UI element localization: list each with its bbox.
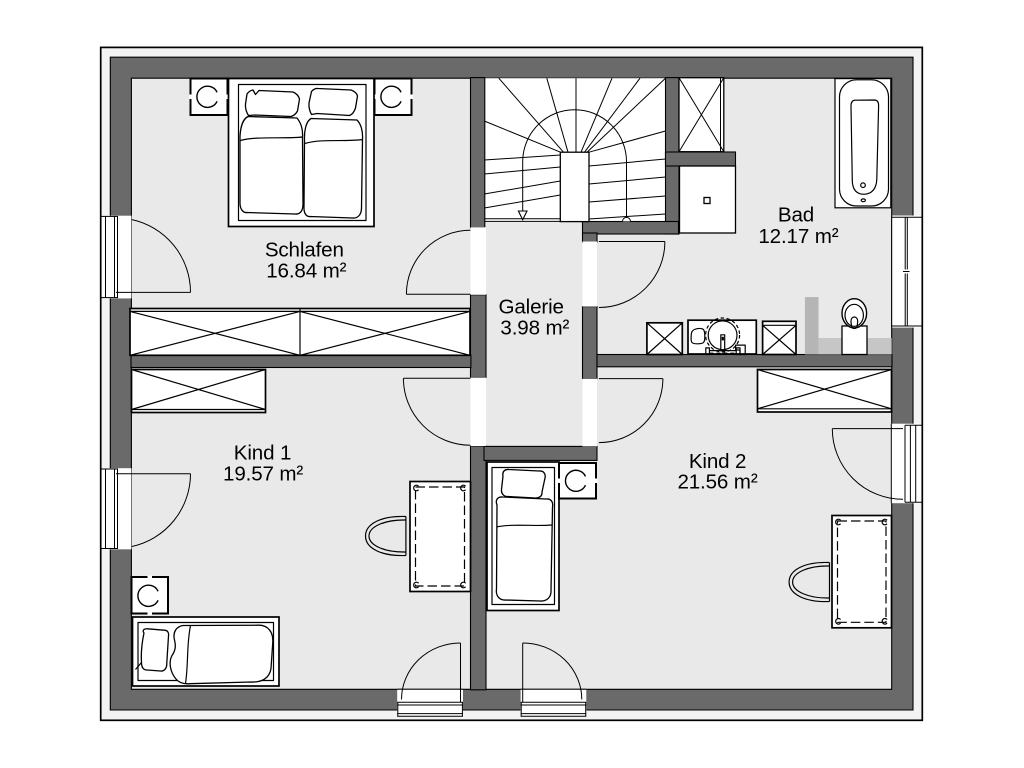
svg-text:Kind 1: Kind 1 [234, 441, 292, 464]
svg-text:21.56 m²: 21.56 m² [677, 470, 757, 493]
svg-text:12.17 m²: 12.17 m² [758, 225, 838, 248]
svg-text:16.84 m²: 16.84 m² [266, 260, 346, 283]
svg-text:Galerie: Galerie [499, 295, 564, 318]
svg-text:Schlafen: Schlafen [265, 238, 344, 261]
svg-text:Bad: Bad [778, 204, 814, 227]
svg-text:3.98 m²: 3.98 m² [500, 317, 569, 340]
svg-text:19.57 m²: 19.57 m² [223, 463, 303, 486]
